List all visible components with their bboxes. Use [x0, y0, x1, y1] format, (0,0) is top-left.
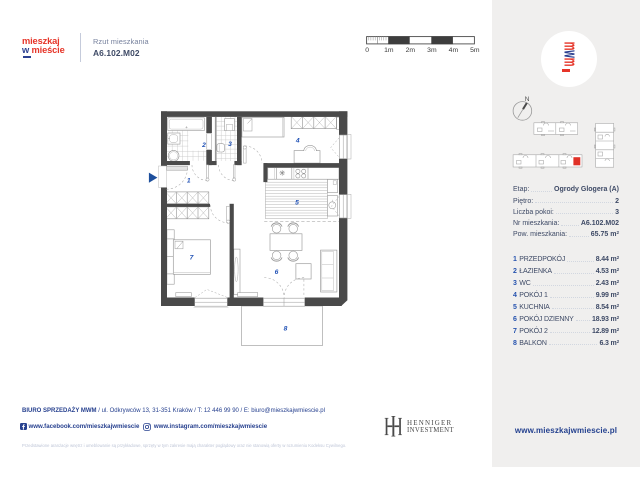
- svg-text:2: 2: [201, 142, 206, 149]
- svg-text:0: 0: [365, 47, 369, 54]
- svg-text:4: 4: [295, 138, 300, 145]
- svg-text:3m: 3m: [427, 47, 437, 54]
- svg-text:6: 6: [275, 269, 279, 276]
- svg-text:7: 7: [190, 254, 194, 261]
- svg-text:5: 5: [295, 200, 299, 207]
- svg-text:4m: 4m: [449, 47, 459, 54]
- svg-text:2m: 2m: [406, 47, 416, 54]
- svg-text:1m: 1m: [384, 47, 394, 54]
- svg-text:1: 1: [187, 177, 191, 184]
- svg-text:3: 3: [228, 141, 232, 148]
- svg-text:5m: 5m: [470, 47, 480, 54]
- svg-text:N: N: [525, 96, 530, 103]
- svg-text:8: 8: [284, 326, 288, 333]
